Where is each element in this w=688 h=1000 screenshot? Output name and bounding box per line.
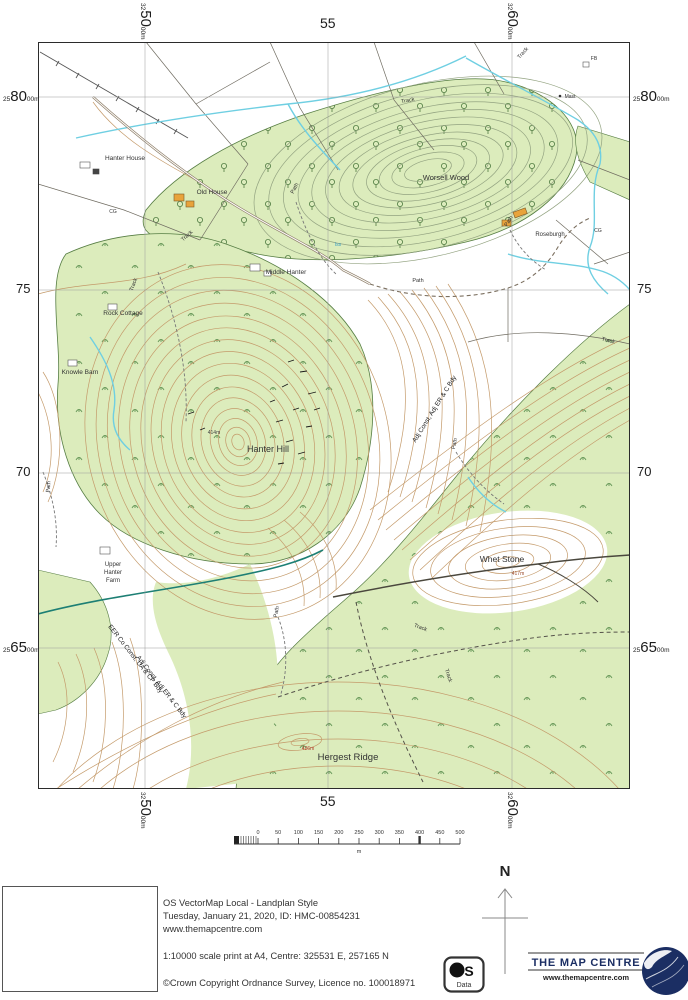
grid-major: 60	[505, 799, 520, 816]
mast-symbol	[559, 95, 562, 98]
os-logo-circle	[450, 963, 465, 978]
label-cg: CG	[109, 209, 117, 215]
label-hergest-ridge: Hergest Ridge	[318, 752, 379, 763]
grid-northing-80-right: 258000m	[633, 89, 670, 104]
scale-bar: 0 50 100 150 200 250 300 350 400 450 500…	[228, 826, 468, 856]
grid-major: 65	[10, 640, 27, 655]
map-canvas: Hanter House Old House Middle Hanter Roc…	[38, 42, 630, 789]
grid-prefix: 25	[3, 97, 10, 104]
label-knowle-barn: Knowle Barn	[62, 369, 99, 376]
scale-tick: 150	[314, 830, 323, 836]
spot-height-whet-stone: 417m	[512, 571, 525, 577]
label-mast: Mast	[565, 94, 576, 100]
grid-northing-70-left: 70	[16, 465, 30, 478]
grid-major: 80	[640, 89, 657, 104]
label-middle-hanter: Middle Hanter	[266, 269, 307, 276]
grid-prefix: 25	[3, 648, 10, 655]
grid-northing-70-right: 70	[637, 465, 651, 478]
grid-prefix: 32	[139, 3, 146, 10]
label-old-house: Old House	[197, 189, 228, 196]
grid-major: 60	[505, 10, 520, 27]
grid-suffix: 00m	[139, 27, 146, 40]
label-upper-hanter-farm: Hanter	[104, 570, 122, 576]
scale-tick: 350	[395, 830, 404, 836]
grid-prefix: 25	[633, 648, 640, 655]
grid-prefix: 32	[506, 792, 513, 799]
map-centre-name: THE MAP CENTRE	[532, 957, 641, 969]
print-info: OS VectorMap Local - Landplan Style Tues…	[163, 897, 433, 990]
building	[93, 169, 99, 174]
blank-address-box	[2, 886, 158, 992]
scale-tick: 300	[375, 830, 384, 836]
os-data-logo: S Data	[443, 956, 485, 996]
os-logo-s: S	[464, 963, 473, 979]
grid-northing-75-right: 75	[637, 282, 651, 295]
scale-tick: 250	[354, 830, 363, 836]
grid-suffix: 00m	[657, 648, 670, 655]
building-upper-hanter-farm	[100, 547, 110, 554]
building-old-house	[174, 194, 184, 201]
label-worsell-wood: Worsell Wood	[423, 173, 469, 182]
label-whet-stone: Whet Stone	[480, 554, 525, 564]
map-print-page: 325000m 55 326000m 325000m 55 326000m 25…	[0, 0, 688, 1000]
label-rock-cottage: Rock Cottage	[103, 310, 143, 317]
building	[583, 62, 589, 67]
label-upper-hanter-farm: Farm	[106, 578, 120, 584]
grid-northing-65-left: 256500m	[3, 640, 40, 655]
grid-easting-60-top: 326000m	[505, 3, 520, 40]
os-data-label: Data	[457, 982, 472, 989]
scale-tick: 100	[294, 830, 303, 836]
print-info-style: OS VectorMap Local - Landplan Style	[163, 897, 433, 910]
grid-easting-50-bottom: 325000m	[138, 792, 153, 829]
grid-major: 65	[640, 640, 657, 655]
label-hanter-house: Hanter House	[105, 155, 145, 162]
scale-tick: 200	[334, 830, 343, 836]
grid-major: 80	[10, 89, 27, 104]
globe-icon	[642, 947, 688, 995]
scale-tick: 400	[415, 830, 424, 836]
map-centre-url: www.themapcentre.com	[542, 973, 629, 982]
scale-bar-ticks: 0 50 100 150 200 250 300 350 400 450 500…	[256, 830, 464, 855]
grid-suffix: 00m	[139, 816, 146, 829]
scale-unit: m	[357, 849, 362, 855]
grid-major: 50	[138, 10, 153, 27]
grid-suffix: 00m	[506, 27, 513, 40]
grid-major: 50	[138, 799, 153, 816]
grid-suffix: 00m	[506, 816, 513, 829]
label-path: Path	[46, 481, 53, 493]
grid-northing-65-right: 256500m	[633, 640, 670, 655]
label-fb: FB	[591, 56, 598, 62]
print-info-scale-centre: 1:10000 scale print at A4, Centre: 32553…	[163, 950, 433, 963]
grid-easting-55-bottom: 55	[320, 794, 336, 808]
building-old-house	[186, 201, 194, 207]
scale-tick: 50	[275, 830, 281, 836]
grid-easting-55-top: 55	[320, 16, 336, 30]
building	[80, 162, 90, 168]
scale-tick: 0	[256, 830, 259, 836]
label-path: Path	[412, 278, 423, 284]
grid-northing-75-left: 75	[16, 282, 30, 295]
grid-easting-50-top: 325000m	[138, 3, 153, 40]
building-middle-hanter	[250, 264, 260, 271]
north-arrow-label: N	[500, 863, 511, 880]
print-info-date-id: Tuesday, January 21, 2020, ID: HMC-00854…	[163, 910, 433, 923]
label-hanter-hill: Hanter Hill	[247, 444, 289, 454]
print-info-url: www.themapcentre.com	[163, 923, 433, 936]
scale-tick: 500	[455, 830, 464, 836]
building-knowle-barn	[68, 360, 77, 366]
label-cg: CG	[594, 228, 602, 234]
spot-height-hergest-ridge: 426m	[302, 746, 315, 752]
grid-northing-80-left: 258000m	[3, 89, 40, 104]
grid-prefix: 32	[506, 3, 513, 10]
scale-tick: 450	[435, 830, 444, 836]
grid-easting-60-bottom: 326000m	[505, 792, 520, 829]
grid-prefix: 25	[633, 97, 640, 104]
grid-suffix: 00m	[657, 97, 670, 104]
grid-prefix: 32	[139, 792, 146, 799]
map-centre-logo: THE MAP CENTRE www.themapcentre.com	[526, 944, 688, 1000]
label-roseburgh: Roseburgh	[535, 232, 564, 238]
label-upper-hanter-farm: Upper	[105, 562, 121, 568]
label-iss: Iss	[335, 242, 342, 248]
spot-height-hanter-hill: 414m	[208, 430, 221, 436]
print-info-copyright: ©Crown Copyright Ordnance Survey, Licenc…	[163, 977, 433, 990]
